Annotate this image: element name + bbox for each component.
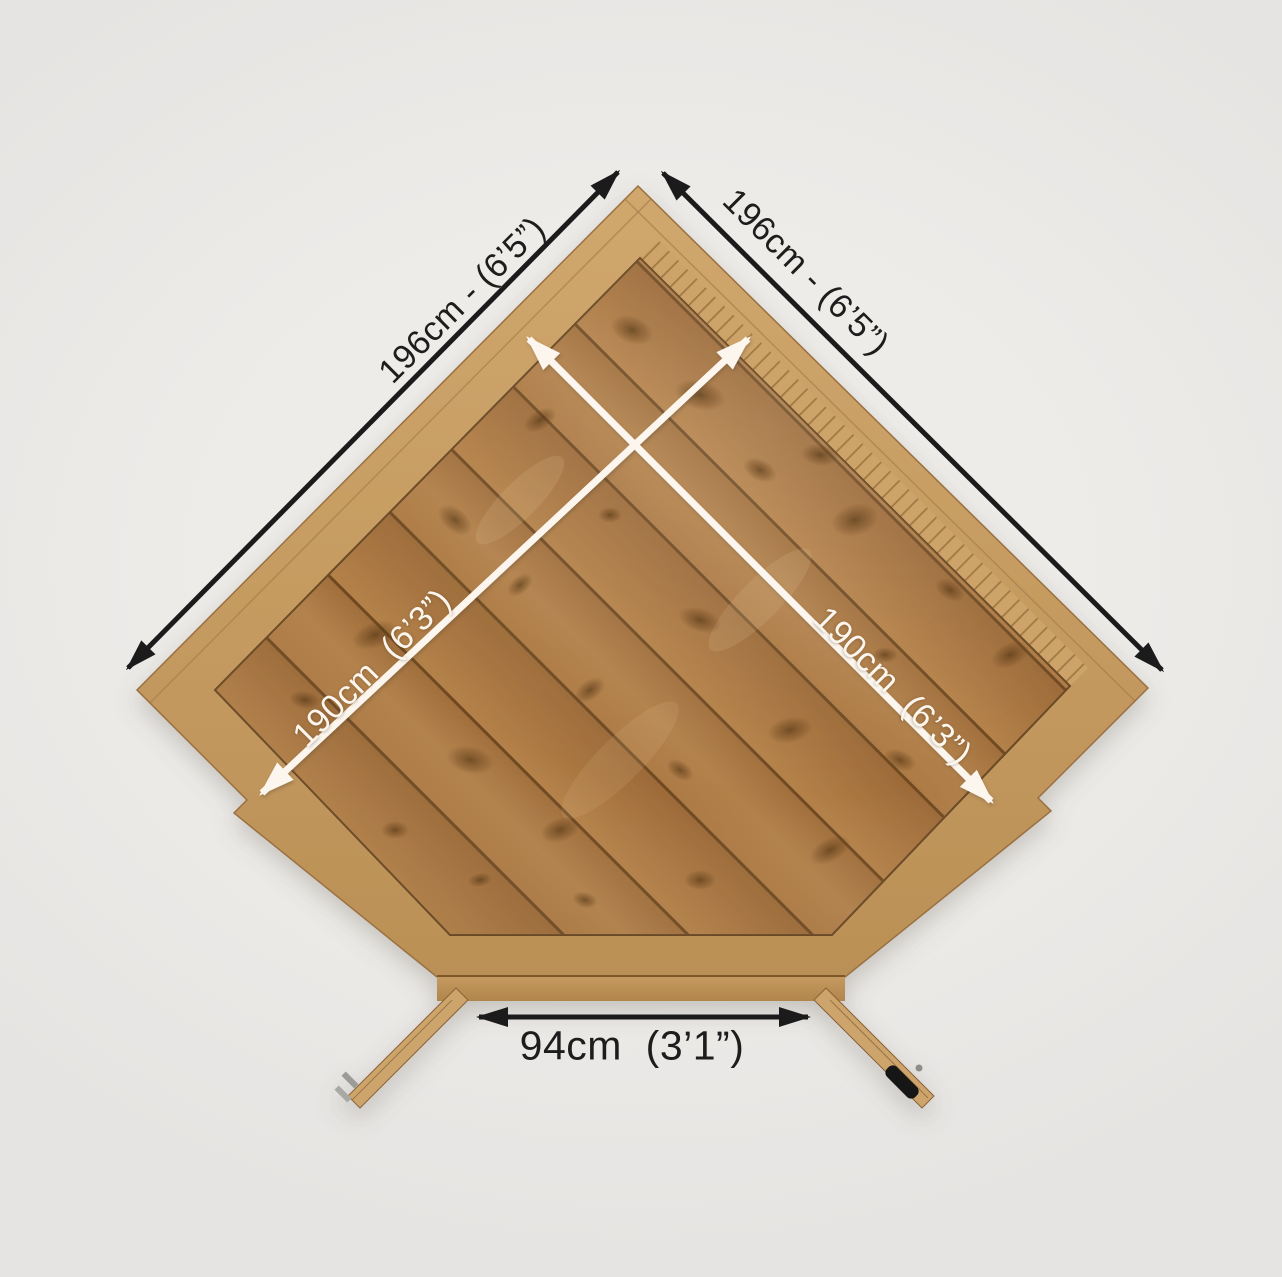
door-threshold: [437, 975, 845, 1001]
shed-plan-svg: [0, 0, 1282, 1277]
door-leaf-left: [335, 988, 468, 1108]
summerhouse-structure: [130, 180, 1160, 1108]
dimension-label-door-width: 94cm (3’1”): [520, 1026, 745, 1067]
door-screw-icon: [916, 1065, 923, 1072]
door-leaf-right: [814, 988, 934, 1108]
door-hinge-icon: [335, 1086, 352, 1103]
door-hinge-icon: [342, 1072, 359, 1089]
floor-plan-diagram: 196cm - (6’5”) 196cm - (6’5”) 190cm (6’3…: [0, 0, 1282, 1277]
